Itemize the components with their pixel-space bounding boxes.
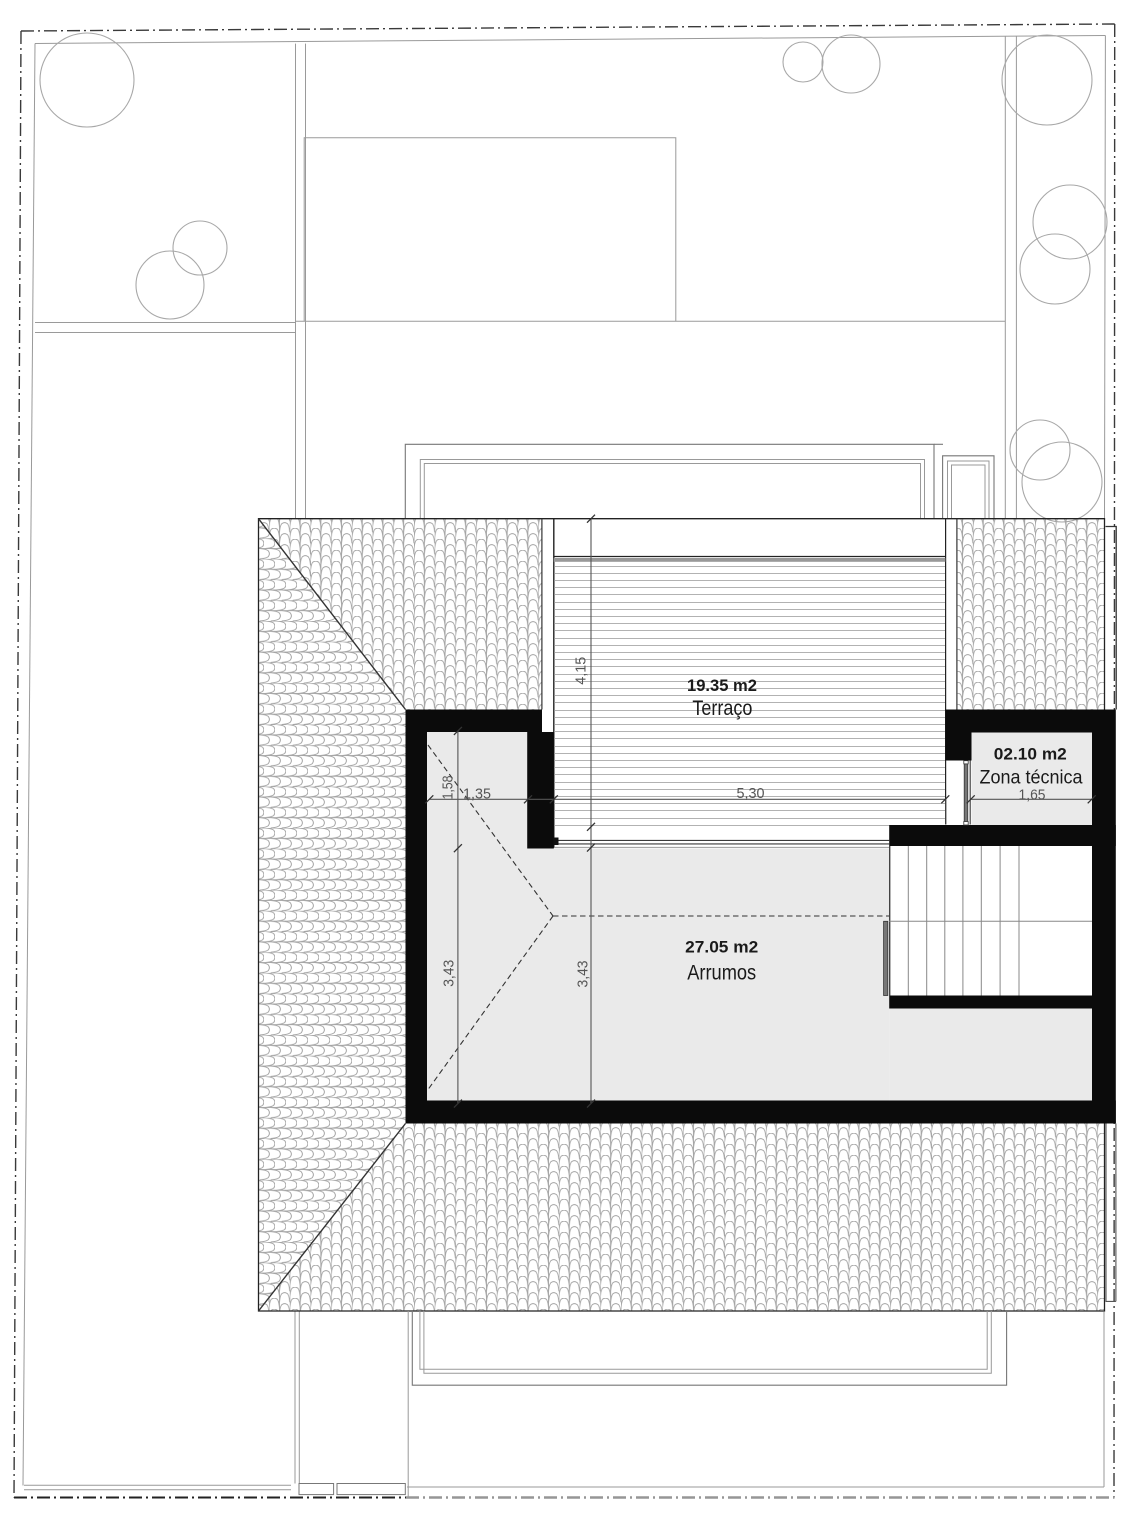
svg-text:Terraço: Terraço [692, 696, 752, 720]
svg-text:27.05 m2: 27.05 m2 [685, 938, 758, 956]
svg-text:1,58: 1,58 [441, 776, 457, 800]
svg-text:4,15: 4,15 [574, 657, 590, 685]
svg-text:3,43: 3,43 [442, 960, 458, 987]
svg-text:1,35: 1,35 [463, 787, 491, 803]
svg-text:Arrumos: Arrumos [687, 961, 756, 985]
svg-text:1,65: 1,65 [1019, 788, 1046, 804]
svg-text:3,43: 3,43 [575, 961, 591, 988]
svg-text:02.10 m2: 02.10 m2 [994, 746, 1067, 764]
svg-text:Zona técnica: Zona técnica [980, 767, 1083, 788]
svg-text:5,30: 5,30 [737, 786, 765, 802]
svg-text:19.35 m2: 19.35 m2 [687, 677, 757, 695]
